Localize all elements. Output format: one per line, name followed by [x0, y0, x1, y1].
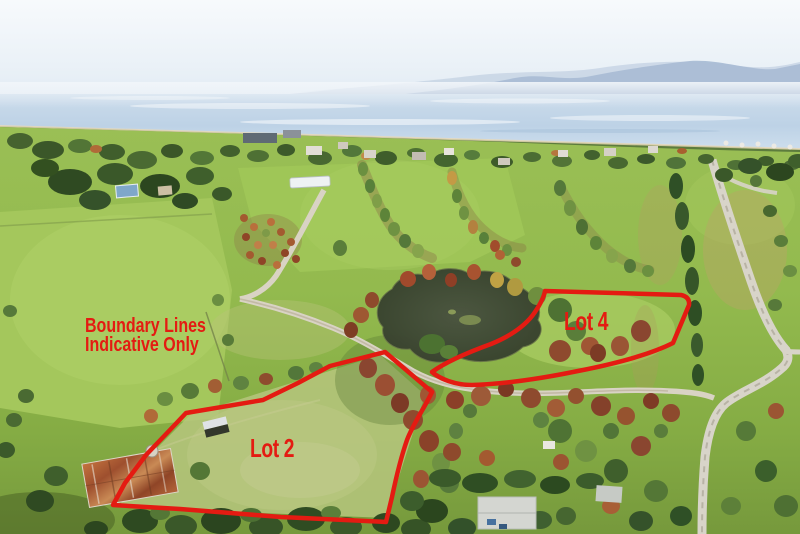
lot-2-label: Lot 2: [250, 433, 294, 464]
bottom-house: [478, 497, 536, 529]
scene-illustration: [0, 0, 800, 534]
pond-island: [459, 315, 481, 325]
disclaimer-line-2: Indicative Only: [85, 336, 206, 355]
industrial-roof: [243, 133, 277, 143]
boundary-disclaimer: Boundary Lines Indicative Only: [85, 317, 206, 354]
aerial-photo: Boundary Lines Indicative Only Lot 2 Lot…: [0, 0, 800, 534]
greenhouse: [290, 176, 330, 188]
sea-glint: [130, 103, 370, 109]
blue-roof-house: [116, 184, 139, 198]
lot-4-label: Lot 4: [564, 306, 608, 337]
disclaimer-line-1: Boundary Lines: [85, 317, 206, 336]
